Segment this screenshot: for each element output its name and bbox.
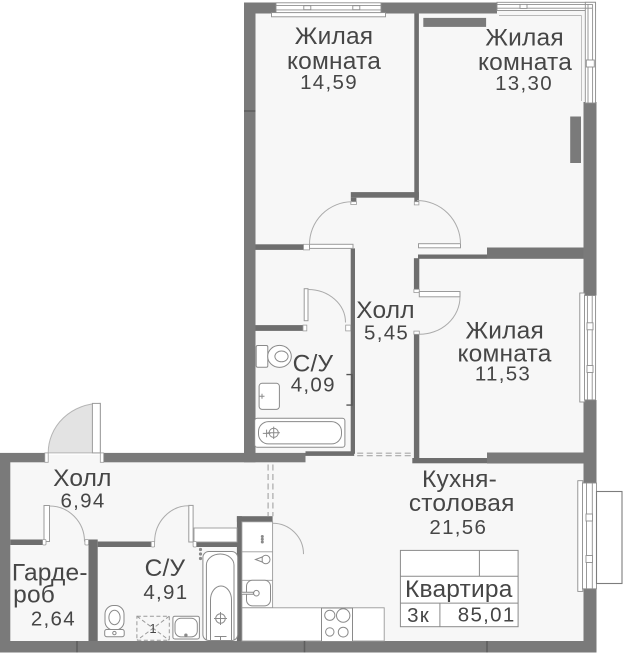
svg-text:2,64: 2,64 (31, 608, 76, 631)
svg-text:3к: 3к (407, 604, 430, 627)
svg-text:Жилая: Жилая (485, 24, 564, 51)
svg-text:14,59: 14,59 (300, 71, 358, 94)
svg-text:4,09: 4,09 (291, 374, 336, 397)
svg-text:Холл: Холл (53, 465, 112, 492)
svg-text:роб: роб (13, 582, 55, 609)
svg-text:6,94: 6,94 (60, 490, 105, 513)
svg-text:Квартира: Квартира (405, 576, 513, 603)
svg-text:13,30: 13,30 (495, 72, 553, 95)
svg-text:85,01: 85,01 (458, 604, 516, 627)
svg-text:1: 1 (149, 621, 156, 636)
svg-text:21,56: 21,56 (429, 516, 487, 539)
svg-text:Жилая: Жилая (295, 23, 374, 50)
svg-text:Холл: Холл (356, 297, 415, 324)
svg-text:5,45: 5,45 (364, 322, 409, 345)
svg-text:4,91: 4,91 (143, 581, 188, 604)
svg-text:столовая: столовая (409, 490, 515, 517)
svg-text:С/У: С/У (145, 555, 186, 582)
svg-text:Кухня-: Кухня- (422, 466, 497, 493)
svg-text:11,53: 11,53 (475, 363, 531, 386)
